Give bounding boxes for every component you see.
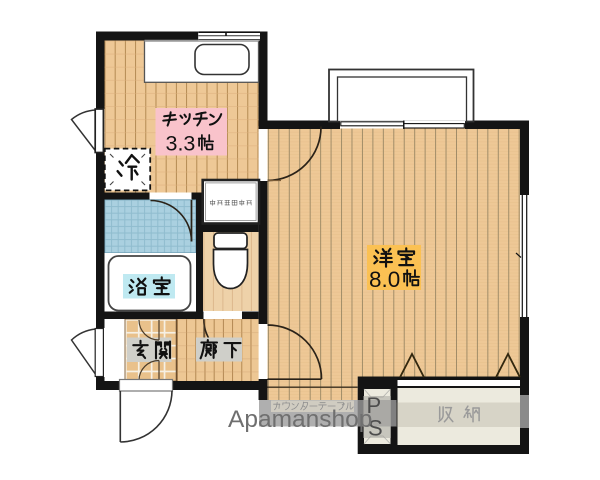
svg-text:Apamanshop: Apamanshop (228, 406, 372, 433)
svg-text:8.0: 8.0 (369, 267, 400, 292)
svg-text:3.3: 3.3 (166, 132, 196, 156)
